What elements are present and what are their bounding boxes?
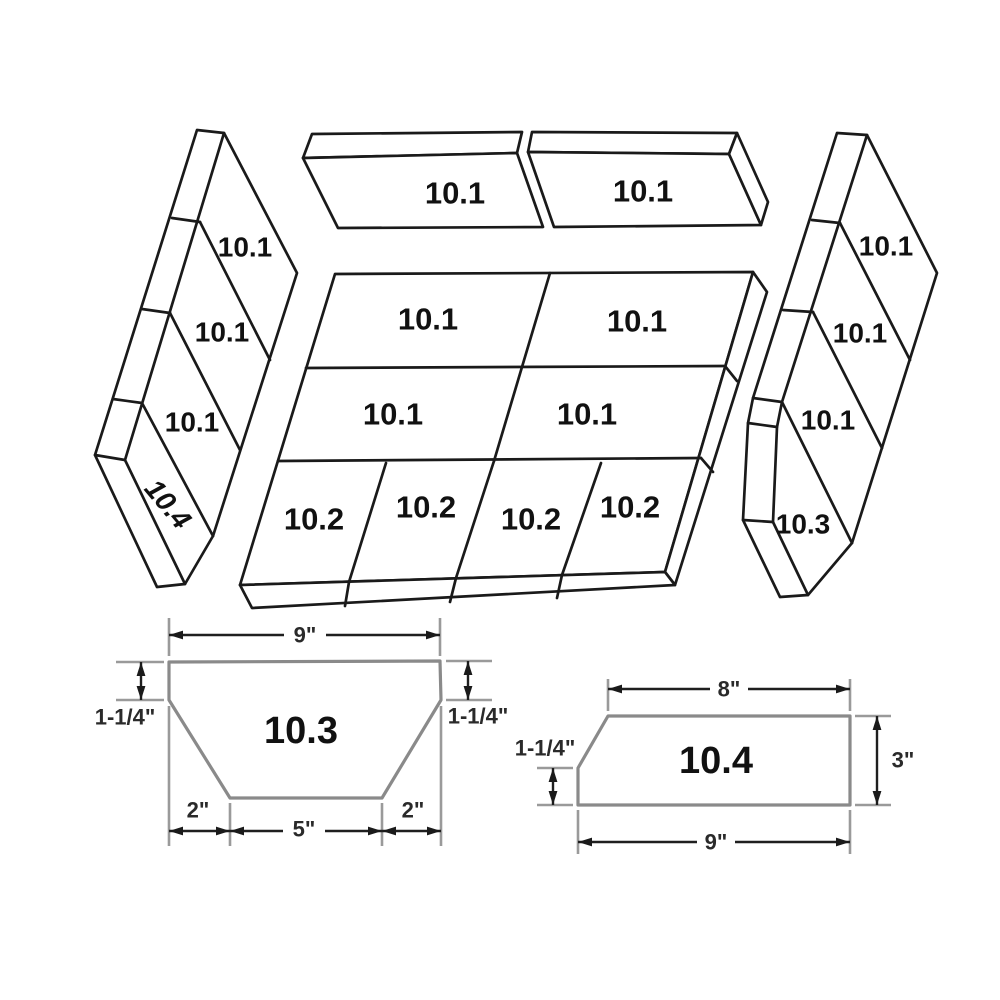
dimension-text: 1-1/4" (95, 705, 156, 730)
dimension-text: 5" (293, 817, 316, 842)
right-panel-brick-label: 10.3 (776, 509, 831, 540)
dimension-text: 9" (705, 830, 728, 855)
center-panel-brick-label: 10.2 (396, 490, 456, 525)
left-panel-brick-label: 10.1 (165, 407, 220, 438)
dimension-text: 2" (187, 798, 210, 823)
center-panel-brick-label: 10.2 (501, 502, 561, 537)
dimension-text: 1-1/4" (448, 704, 509, 729)
detail-drawing-10-4: 8" 3" 9" 1-1/4" 10.4 (515, 676, 915, 855)
part-10-3-label: 10.3 (264, 710, 338, 752)
left-panel-brick-label: 10.1 (218, 232, 273, 263)
firebrick-layout-diagram: 10.1 10.1 10.1 10.1 10.1 10.4 10.1 (0, 0, 1000, 1000)
center-panel-brick-label: 10.2 (284, 502, 344, 537)
top-brick-right-label: 10.1 (613, 174, 673, 209)
part-10-4-label: 10.4 (679, 740, 753, 782)
center-panel-brick-label: 10.1 (557, 397, 617, 432)
top-brick-left-label: 10.1 (425, 176, 485, 211)
top-brick-row: 10.1 10.1 (303, 132, 768, 228)
center-panel-brick-label: 10.2 (600, 490, 660, 525)
center-panel-brick-label: 10.1 (607, 304, 667, 339)
dimension-text: 8" (718, 677, 741, 702)
top-brick-right-top-face (528, 132, 737, 154)
dimension-text: 2" (402, 798, 425, 823)
detail-drawing-10-3: 9" 1-1/4" 1-1/4" 2" 5" 2" 10.3 (95, 618, 509, 846)
center-panel: 10.1 10.1 10.1 10.1 10.2 10.2 10.2 10.2 (240, 272, 767, 608)
center-panel-brick-label: 10.1 (363, 397, 423, 432)
dimension-text: 9" (294, 623, 317, 648)
right-side-panel: 10.1 10.1 10.1 10.3 (743, 133, 937, 597)
right-panel-brick-label: 10.1 (833, 318, 888, 349)
dimension-text: 1-1/4" (515, 736, 576, 761)
dimension-text: 3" (892, 748, 915, 773)
center-panel-brick-label: 10.1 (398, 302, 458, 337)
left-panel-brick-label: 10.1 (195, 317, 250, 348)
top-brick-left-front-face (303, 153, 543, 228)
right-panel-brick-label: 10.1 (859, 231, 914, 262)
right-panel-brick-label: 10.1 (801, 405, 856, 436)
